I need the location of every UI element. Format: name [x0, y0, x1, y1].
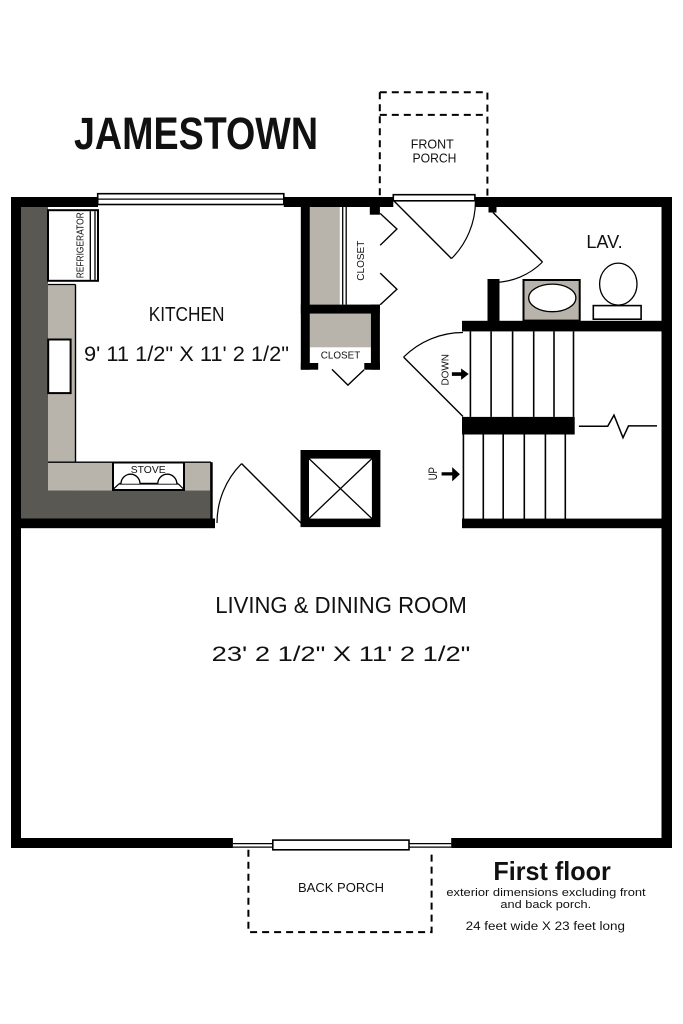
svg-text:FRONT: FRONT [411, 138, 454, 152]
svg-text:PORCH: PORCH [413, 152, 457, 166]
svg-text:First floor: First floor [493, 856, 610, 886]
svg-text:KITCHEN: KITCHEN [149, 304, 225, 326]
svg-text:STOVE: STOVE [131, 465, 166, 476]
svg-text:UP: UP [428, 467, 440, 480]
svg-text:BACK PORCH: BACK PORCH [298, 880, 384, 895]
svg-text:LIVING & DINING ROOM: LIVING & DINING ROOM [215, 592, 467, 618]
svg-text:CLOSET: CLOSET [321, 350, 361, 362]
svg-text:DOWN: DOWN [439, 354, 451, 386]
svg-text:9' 11 1/2" X 11' 2 1/2": 9' 11 1/2" X 11' 2 1/2" [84, 343, 289, 366]
svg-text:23' 2 1/2" X 11' 2 1/2": 23' 2 1/2" X 11' 2 1/2" [212, 643, 471, 666]
svg-text:exterior dimensions excluding: exterior dimensions excluding front [446, 887, 645, 899]
svg-text:and back porch.: and back porch. [500, 899, 591, 911]
svg-text:REFRIGERATOR: REFRIGERATOR [76, 212, 87, 278]
svg-text:JAMESTOWN: JAMESTOWN [74, 108, 318, 159]
svg-text:CLOSET: CLOSET [355, 240, 367, 281]
svg-text:LAV.: LAV. [586, 231, 622, 252]
svg-text:24 feet wide X 23 feet long: 24 feet wide X 23 feet long [466, 921, 625, 933]
